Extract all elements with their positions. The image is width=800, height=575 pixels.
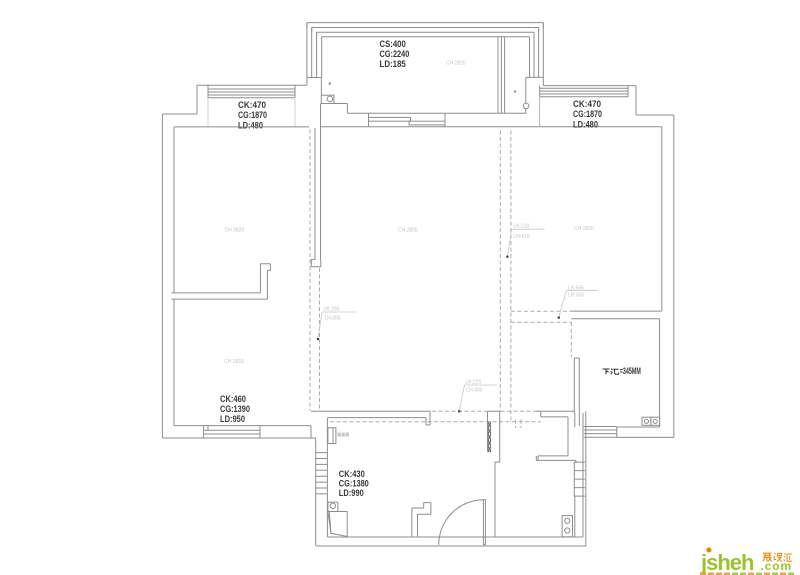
svg-text:LD:990: LD:990: [339, 488, 364, 498]
svg-text:LK:565: LK:565: [568, 285, 584, 291]
svg-text:CG:2240: CG:2240: [380, 49, 410, 59]
svg-text:CH 2810: CH 2810: [224, 359, 244, 365]
svg-text:CH 2820: CH 2820: [446, 61, 466, 67]
svg-text:LD:480: LD:480: [238, 120, 263, 130]
svg-text:LK:220: LK:220: [466, 380, 482, 386]
svg-text:CK:470: CK:470: [238, 100, 266, 110]
svg-text:CS:400: CS:400: [380, 39, 406, 49]
svg-text:LD:480: LD:480: [573, 119, 598, 129]
svg-text:CH 2820: CH 2820: [574, 226, 594, 232]
svg-text:CG:1870: CG:1870: [238, 110, 267, 120]
svg-text:CK:430: CK:430: [339, 469, 365, 479]
svg-text:LH:400: LH:400: [466, 388, 482, 394]
svg-text:LH:410: LH:410: [513, 234, 529, 240]
svg-text:jsheh: jsheh: [700, 550, 754, 575]
svg-text:CG:1390: CG:1390: [220, 404, 250, 414]
svg-text:LD:185: LD:185: [380, 59, 406, 69]
svg-text:LK:205: LK:205: [324, 307, 340, 313]
svg-text:CH 2820: CH 2820: [225, 228, 245, 234]
svg-text:CG:1870: CG:1870: [573, 109, 602, 119]
svg-text:LH:355: LH:355: [568, 293, 584, 299]
svg-text:LH:395: LH:395: [325, 316, 341, 322]
svg-text:LD:950: LD:950: [220, 414, 245, 424]
svg-text:LK:210: LK:210: [513, 224, 529, 230]
svg-text:=345MM: =345MM: [620, 366, 641, 376]
svg-text:CK:460: CK:460: [220, 394, 246, 404]
svg-text:CK:470: CK:470: [573, 99, 601, 109]
svg-text:CH 2805: CH 2805: [398, 228, 418, 234]
